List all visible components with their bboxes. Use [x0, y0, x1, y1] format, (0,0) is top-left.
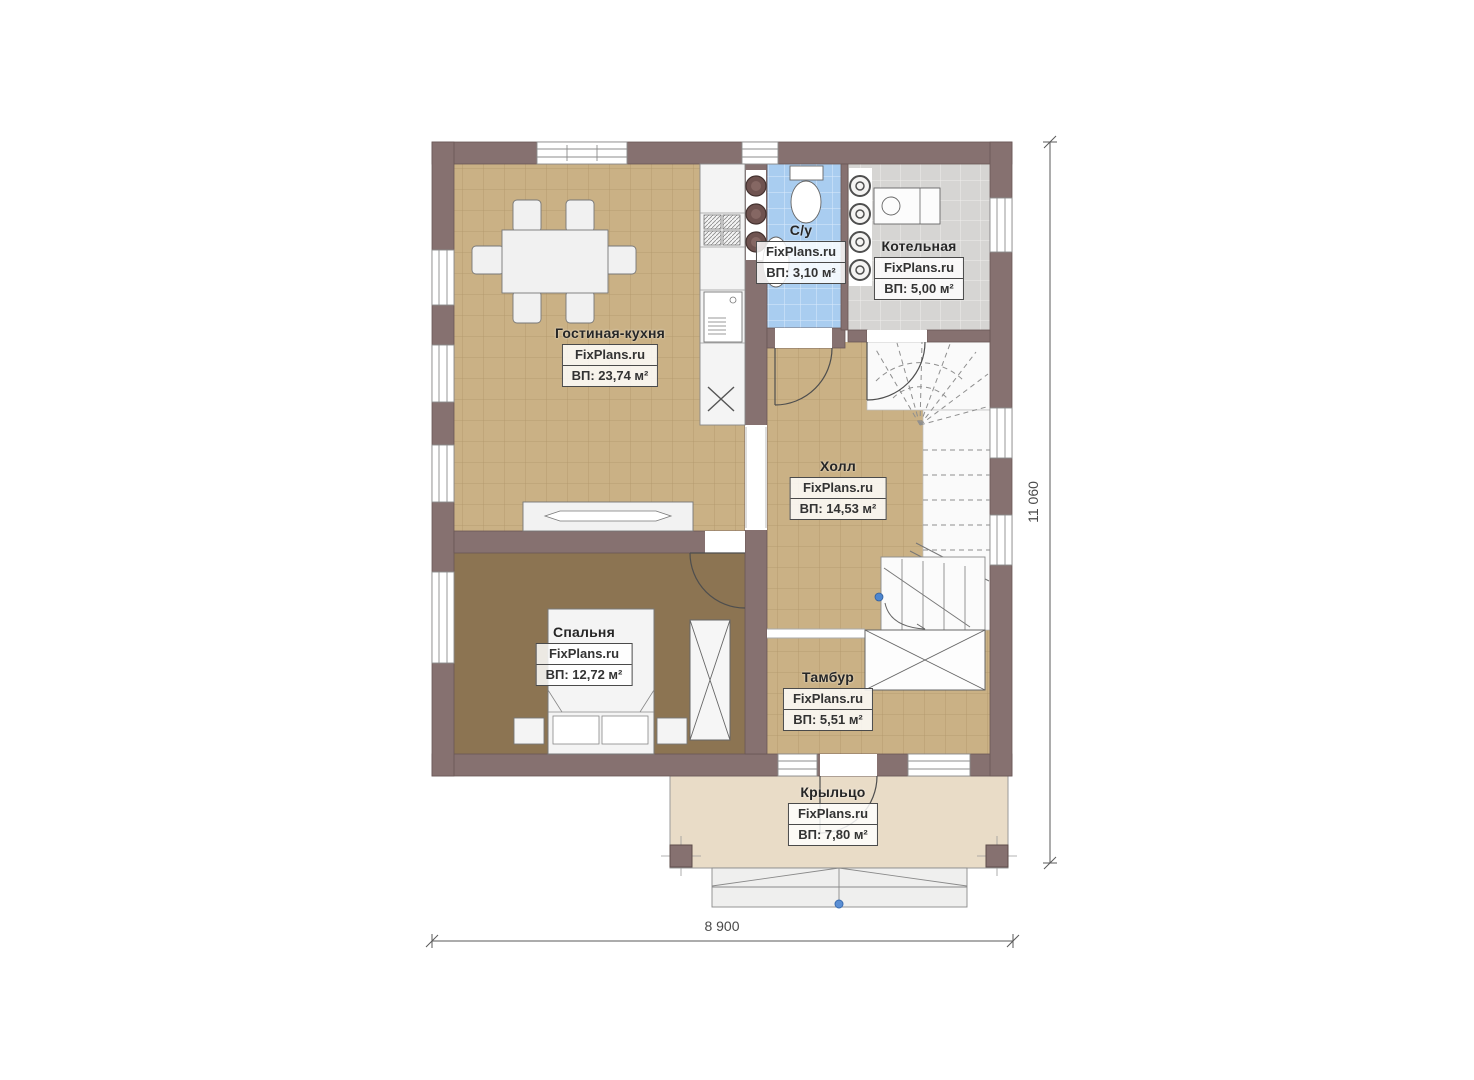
nightstand-left — [514, 718, 544, 744]
window-bathroom-top — [742, 142, 778, 164]
pillow — [553, 716, 599, 744]
room-label-boiler-room: Котельная FixPlans.ru ВП: 5,00 м² — [874, 238, 964, 300]
chair — [472, 246, 504, 274]
floor-plan-canvas: 11 060 8 900 Гостиная-кухня FixPlans.ru … — [0, 0, 1474, 1080]
room-label-hall: Холл FixPlans.ru ВП: 14,53 м² — [790, 458, 887, 520]
brand-watermark: FixPlans.ru — [563, 345, 658, 365]
floor-plan-drawing: 11 060 8 900 — [0, 0, 1474, 1080]
porch-post-left — [670, 845, 692, 867]
porch-post-right — [986, 845, 1008, 867]
room-label-vestibule: Тамбур FixPlans.ru ВП: 5,51 м² — [783, 669, 873, 731]
room-name: Тамбур — [783, 669, 873, 685]
room-label-porch: Крыльцо FixPlans.ru ВП: 7,80 м² — [788, 784, 878, 846]
dining-table — [502, 230, 608, 293]
room-name: Спальня — [536, 624, 633, 640]
brand-watermark: FixPlans.ru — [757, 242, 845, 262]
chair — [513, 200, 541, 232]
pillow — [602, 716, 648, 744]
wall-top — [432, 142, 1012, 164]
room-area: ВП: 3,10 м² — [757, 262, 845, 283]
room-info-box: FixPlans.ru ВП: 12,72 м² — [536, 643, 633, 686]
room-area: ВП: 14,53 м² — [791, 498, 886, 519]
window-boiler-right — [990, 198, 1012, 252]
window-kitchen-top — [537, 142, 627, 164]
fridge — [704, 292, 742, 342]
stair-landing-area — [867, 342, 990, 410]
room-name: Гостиная-кухня — [555, 325, 665, 341]
room-info-box: FixPlans.ru ВП: 7,80 м² — [788, 803, 878, 846]
room-area: ВП: 7,80 м² — [789, 824, 877, 845]
chair — [566, 200, 594, 232]
toilet-bowl — [791, 181, 821, 223]
chair — [513, 291, 541, 323]
stairs-lower-flight — [875, 557, 985, 634]
room-name: Котельная — [874, 238, 964, 254]
room-label-bathroom: С/у FixPlans.ru ВП: 3,10 м² — [756, 222, 846, 284]
dimension-right: 11 060 — [1025, 136, 1057, 869]
dimension-height-label: 11 060 — [1025, 481, 1041, 523]
window-vestibule-bottom-2 — [908, 754, 970, 776]
window-vestibule-bottom-1 — [778, 754, 817, 776]
wall-partition-bedroom — [454, 531, 745, 553]
window-stairs-right-1 — [990, 408, 1012, 458]
room-info-box: FixPlans.ru ВП: 5,51 м² — [783, 688, 873, 731]
window-stairs-right-2 — [990, 515, 1012, 565]
stair-start-marker — [875, 593, 883, 601]
brand-watermark: FixPlans.ru — [789, 804, 877, 824]
wall-boiler-bottom-right — [927, 330, 990, 342]
brand-watermark: FixPlans.ru — [784, 689, 872, 709]
window-living-left-2 — [432, 345, 454, 402]
brand-watermark: FixPlans.ru — [791, 478, 886, 498]
room-area: ВП: 5,00 м² — [875, 278, 963, 299]
chair — [604, 246, 636, 274]
room-info-box: FixPlans.ru ВП: 3,10 м² — [756, 241, 846, 284]
nightstand-right — [657, 718, 687, 744]
wall-boiler-bottom-left — [848, 330, 867, 342]
wardrobe — [690, 620, 730, 740]
room-area: ВП: 5,51 м² — [784, 709, 872, 730]
tv-unit — [523, 502, 693, 531]
room-area: ВП: 12,72 м² — [537, 664, 632, 685]
porch-axis-marker — [835, 900, 843, 908]
window-living-left-1 — [432, 250, 454, 305]
window-living-left-3 — [432, 445, 454, 502]
room-info-box: FixPlans.ru ВП: 23,74 м² — [562, 344, 659, 387]
chair — [566, 291, 594, 323]
dimension-bottom: 8 900 — [426, 918, 1019, 948]
room-info-box: FixPlans.ru ВП: 5,00 м² — [874, 257, 964, 300]
brand-watermark: FixPlans.ru — [875, 258, 963, 278]
room-label-living-kitchen: Гостиная-кухня FixPlans.ru ВП: 23,74 м² — [555, 325, 665, 387]
dimension-width-label: 8 900 — [704, 918, 739, 934]
room-label-bedroom: Спальня FixPlans.ru ВП: 12,72 м² — [536, 624, 633, 686]
understairs-closet — [865, 630, 985, 690]
window-bedroom-left — [432, 572, 454, 663]
pipe-risers — [849, 168, 872, 286]
boiler-equipment — [874, 188, 940, 224]
brand-watermark: FixPlans.ru — [537, 644, 632, 664]
toilet-tank — [790, 166, 823, 180]
room-info-box: FixPlans.ru ВП: 14,53 м² — [790, 477, 887, 520]
room-area: ВП: 23,74 м² — [563, 365, 658, 386]
room-name: С/у — [756, 222, 846, 238]
room-name: Холл — [790, 458, 887, 474]
room-name: Крыльцо — [788, 784, 878, 800]
